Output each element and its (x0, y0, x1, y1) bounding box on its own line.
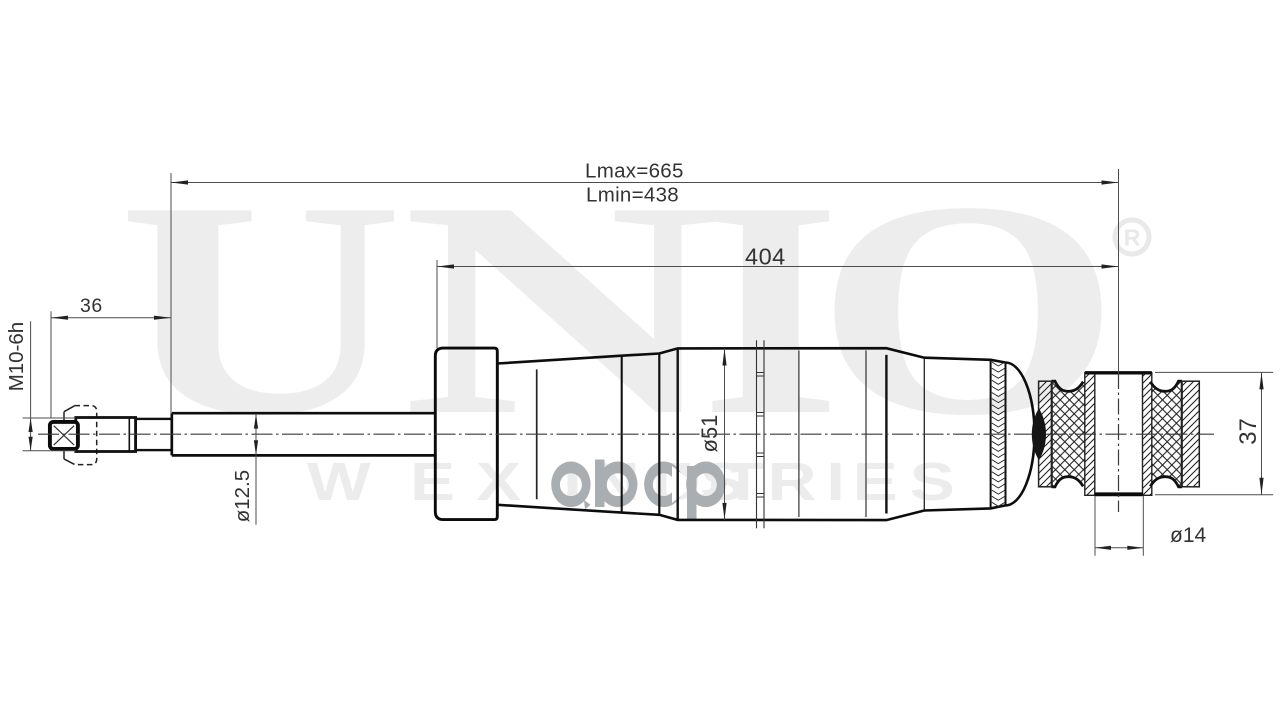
svg-text:U: U (118, 137, 404, 478)
svg-text:36: 36 (80, 295, 103, 317)
svg-text:ø14: ø14 (1170, 524, 1207, 547)
svg-text:R: R (1124, 225, 1141, 251)
svg-text:404: 404 (745, 244, 786, 270)
svg-text:ø51: ø51 (697, 415, 722, 453)
svg-text:ø12.5: ø12.5 (231, 470, 254, 522)
svg-text:Lmin=438: Lmin=438 (586, 184, 679, 207)
svg-text:37: 37 (1235, 418, 1262, 445)
svg-text:Lmax=665: Lmax=665 (585, 160, 684, 183)
svg-text:M10-6h: M10-6h (5, 322, 28, 392)
